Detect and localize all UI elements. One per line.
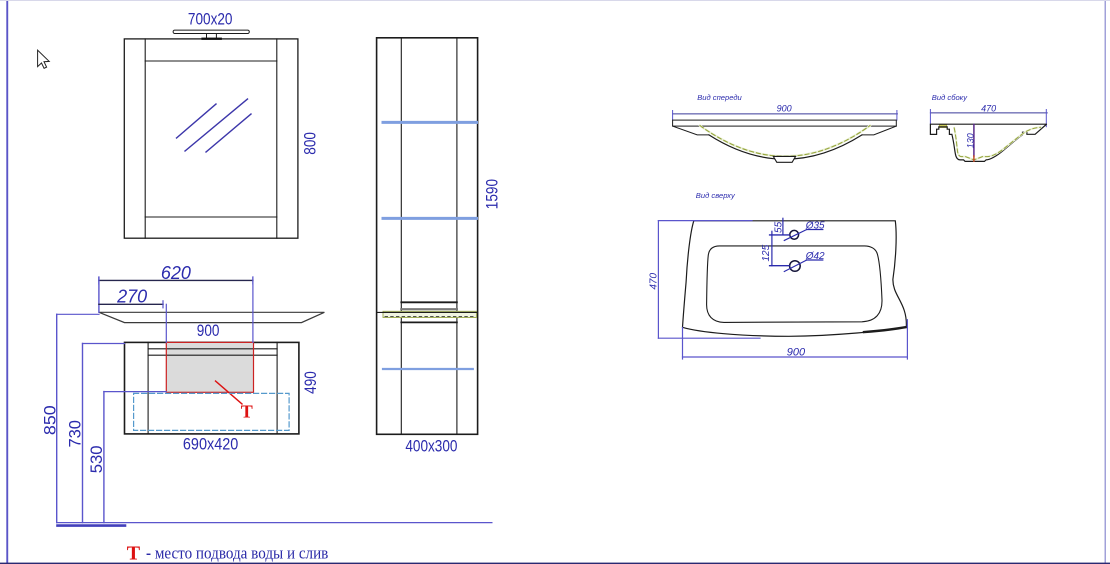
svg-text:Т: Т [127, 542, 141, 564]
svg-text:130: 130 [965, 133, 975, 148]
svg-text:800: 800 [301, 132, 320, 155]
svg-text:Вид спереди: Вид спереди [697, 93, 742, 102]
svg-text:690x420: 690x420 [183, 435, 239, 453]
svg-text:470: 470 [648, 273, 659, 290]
svg-text:Ø42: Ø42 [805, 251, 825, 262]
svg-text:530: 530 [87, 446, 106, 474]
svg-text:125: 125 [761, 244, 772, 261]
svg-text:700x20: 700x20 [188, 10, 233, 29]
svg-text:730: 730 [65, 420, 84, 447]
svg-text:Ø35: Ø35 [805, 221, 825, 232]
svg-text:1590: 1590 [483, 179, 502, 209]
svg-text:490: 490 [301, 371, 320, 394]
svg-text:620: 620 [161, 263, 191, 283]
svg-text:900: 900 [197, 321, 220, 340]
svg-text:Вид сбоку: Вид сбоку [932, 93, 968, 102]
svg-text:900: 900 [787, 346, 806, 358]
svg-text:270: 270 [116, 287, 147, 307]
svg-text:Т: Т [241, 401, 253, 421]
svg-text:Вид сверху: Вид сверху [696, 191, 736, 200]
svg-text:850: 850 [40, 405, 60, 435]
svg-text:55: 55 [773, 221, 784, 233]
svg-text:470: 470 [981, 104, 996, 114]
svg-text:- место подвода воды и слив: - место подвода воды и слив [146, 545, 329, 563]
svg-text:400x300: 400x300 [405, 437, 457, 456]
svg-text:900: 900 [777, 104, 792, 114]
